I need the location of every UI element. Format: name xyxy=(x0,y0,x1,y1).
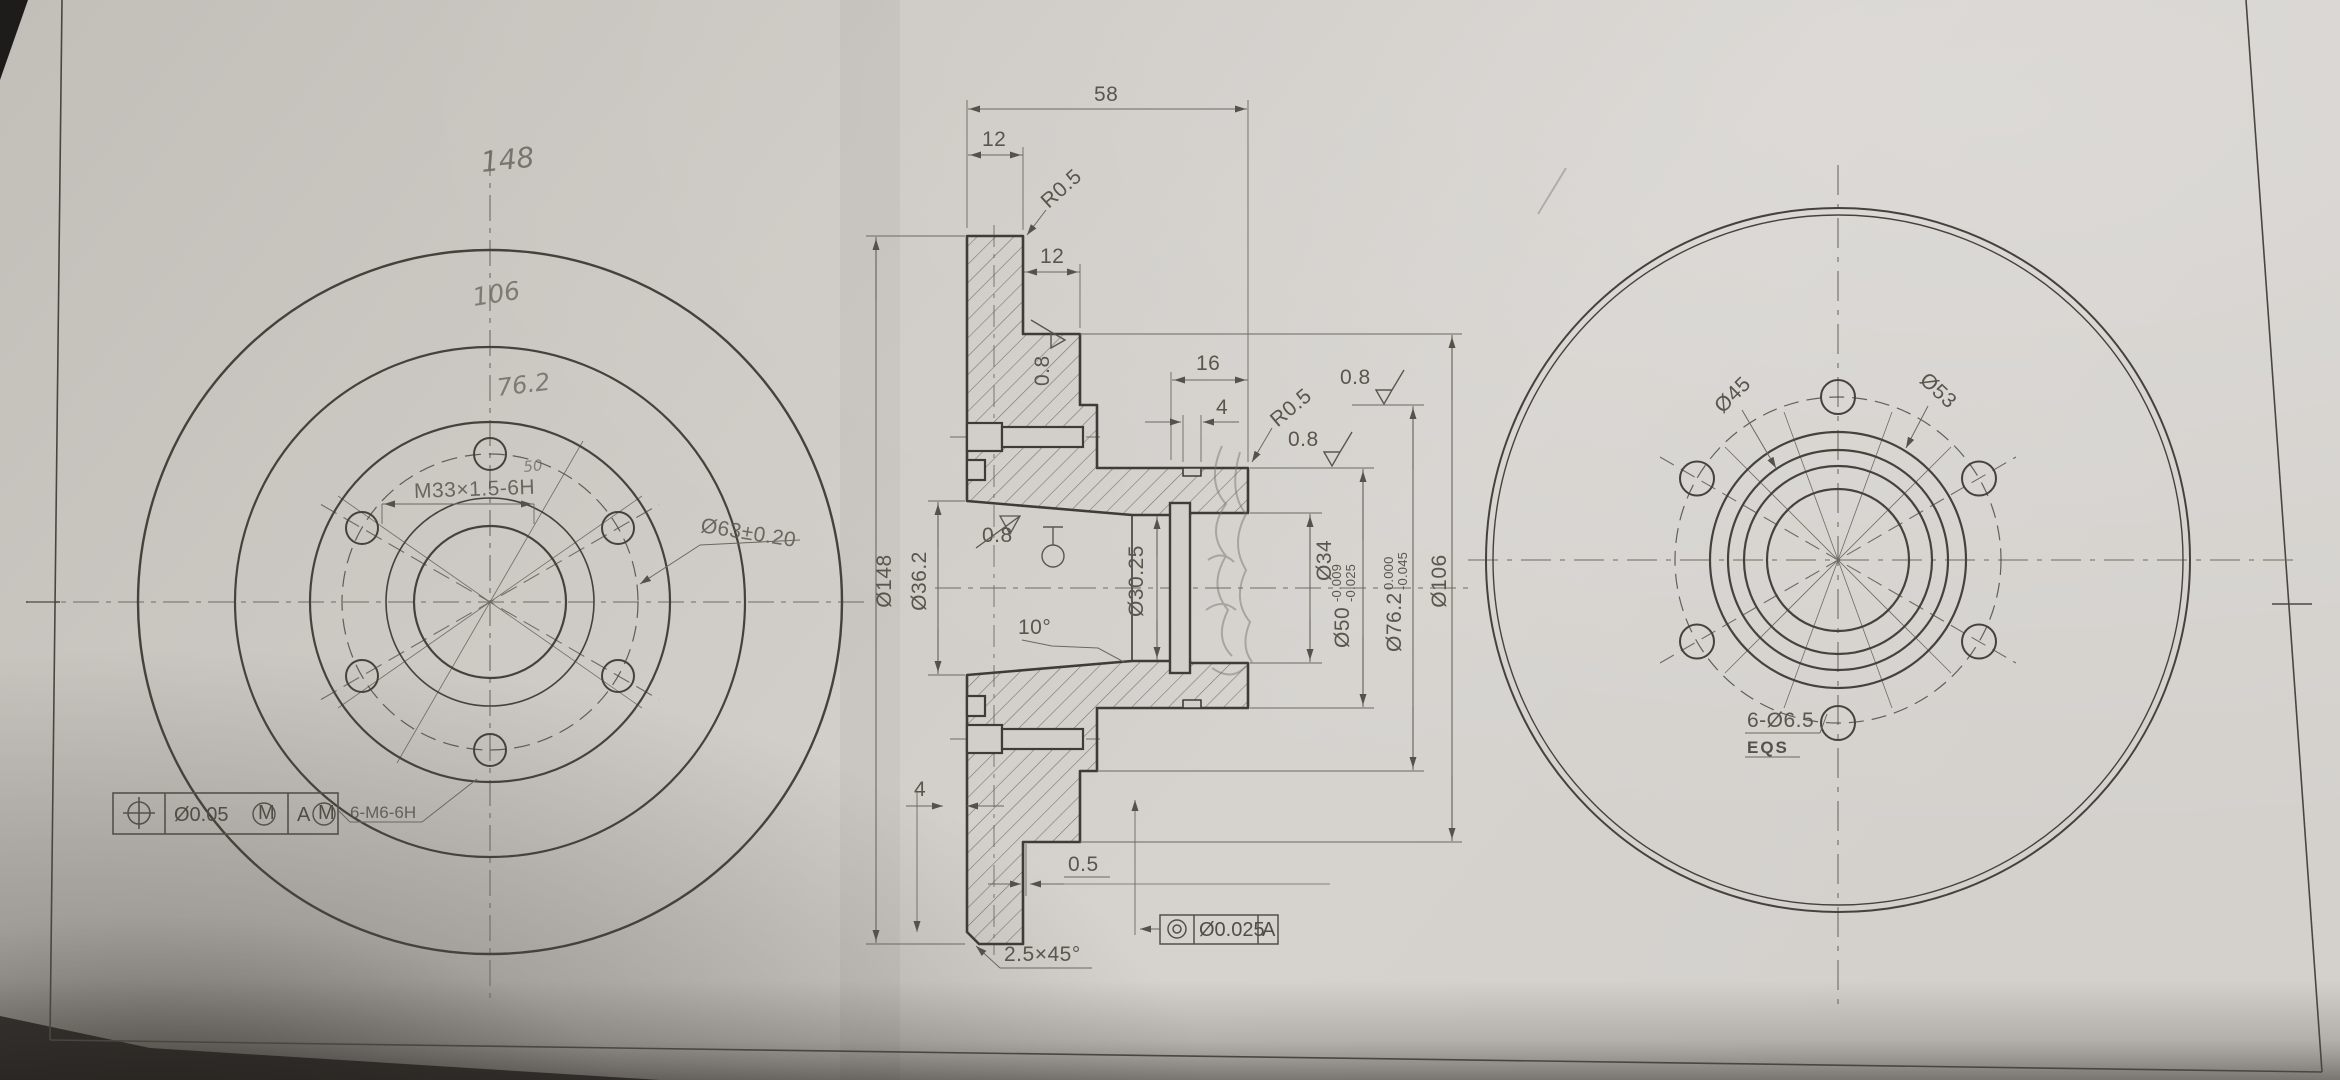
face-notch xyxy=(967,460,985,480)
dia-30-label: Ø30.25 xyxy=(1125,545,1148,617)
roughness-label: 0.8 xyxy=(1288,428,1319,451)
thread-spec-label: M33×1.5-6H xyxy=(414,476,536,503)
fcf2-datum: A xyxy=(1262,919,1276,941)
blueprint-photo: 148 106 76.2 50 M33×1.5-6H Ø63±0.20 xyxy=(0,0,2340,1080)
dim-4-back-label: 4 xyxy=(914,778,926,801)
dia-76-tol-lower: -0.045 xyxy=(1395,552,1410,590)
holes-label: 6-Ø6.5 xyxy=(1747,709,1814,732)
taper-label: 10° xyxy=(1018,616,1051,639)
fcf-modifier-m: M xyxy=(258,802,275,824)
dia-50-label: Ø50 xyxy=(1331,607,1354,648)
dim-58-label: 58 xyxy=(1094,83,1118,106)
roughness-label: 0.8 xyxy=(1031,355,1054,386)
roughness-label: 0.8 xyxy=(982,524,1013,547)
fcf-datum-modifier-m: M xyxy=(318,802,335,824)
dia-50-tol-upper: -0.009 xyxy=(1329,564,1344,602)
face-notch xyxy=(967,696,985,716)
holes-note-label: EQS xyxy=(1747,738,1789,757)
dim-16-label: 16 xyxy=(1196,352,1220,375)
fcf-datum: A xyxy=(297,804,311,826)
dia-76-tol-upper: 0.000 xyxy=(1381,556,1396,590)
dim-12-flange-label: 12 xyxy=(1040,245,1064,268)
engineering-drawing: 148 106 76.2 50 M33×1.5-6H Ø63±0.20 xyxy=(0,0,2340,1080)
dim-12-disc-label: 12 xyxy=(982,128,1006,151)
dia-76-label: Ø76.2 xyxy=(1383,592,1406,652)
holes-thread-note: 6-M6-6H xyxy=(350,803,416,822)
roughness-label: 0.8 xyxy=(1340,366,1371,389)
fcf2-tolerance: Ø0.025 xyxy=(1199,919,1265,941)
dim-05-label: 0.5 xyxy=(1068,853,1099,876)
bore-collar-ring xyxy=(1170,503,1190,673)
fcf-tolerance: Ø0.05 xyxy=(174,804,228,826)
chamfer-label: 2.5×45° xyxy=(1004,943,1081,966)
dia-50-tol-lower: -0.025 xyxy=(1343,564,1358,602)
handwritten-dia-148: 148 xyxy=(479,141,536,179)
dia-36-label: Ø36.2 xyxy=(908,551,931,611)
dia-106-label: Ø106 xyxy=(1428,554,1451,607)
dim-4-groove-label: 4 xyxy=(1216,396,1228,419)
handwritten-note-50: 50 xyxy=(523,456,544,476)
